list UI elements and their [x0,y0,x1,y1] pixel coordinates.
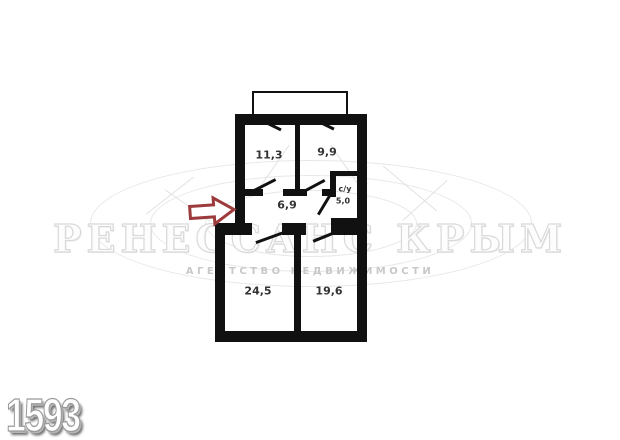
room-area-label: 6,9 [277,199,297,212]
watermark-title: РЕНЕССАНС КРЫМ [53,216,567,261]
photo-id: 1593 [6,388,80,440]
room-area-label: 5,0 [336,197,350,206]
room-area-label: 11,3 [255,149,282,162]
room-area-label: 24,5 [244,285,271,298]
wall-segment [282,223,306,235]
floorplan-image: РЕНЕССАНС КРЫМ АГЕНТСТВО НЕДВИЖИМОСТИ 11… [0,0,620,440]
balcony-outline [252,91,348,116]
room-area-label: 19,6 [315,285,342,298]
wall-segment [235,114,367,125]
wall-segment [215,331,367,342]
bathroom-label: с/у [339,185,352,194]
wall-segment [215,223,225,342]
wall-segment [295,124,300,190]
entrance-arrow [185,192,239,230]
wall-segment [294,235,301,331]
wall-segment [330,171,357,176]
wall-segment [357,114,367,342]
room-area-label: 9,9 [317,146,337,159]
wall-segment [283,189,307,196]
